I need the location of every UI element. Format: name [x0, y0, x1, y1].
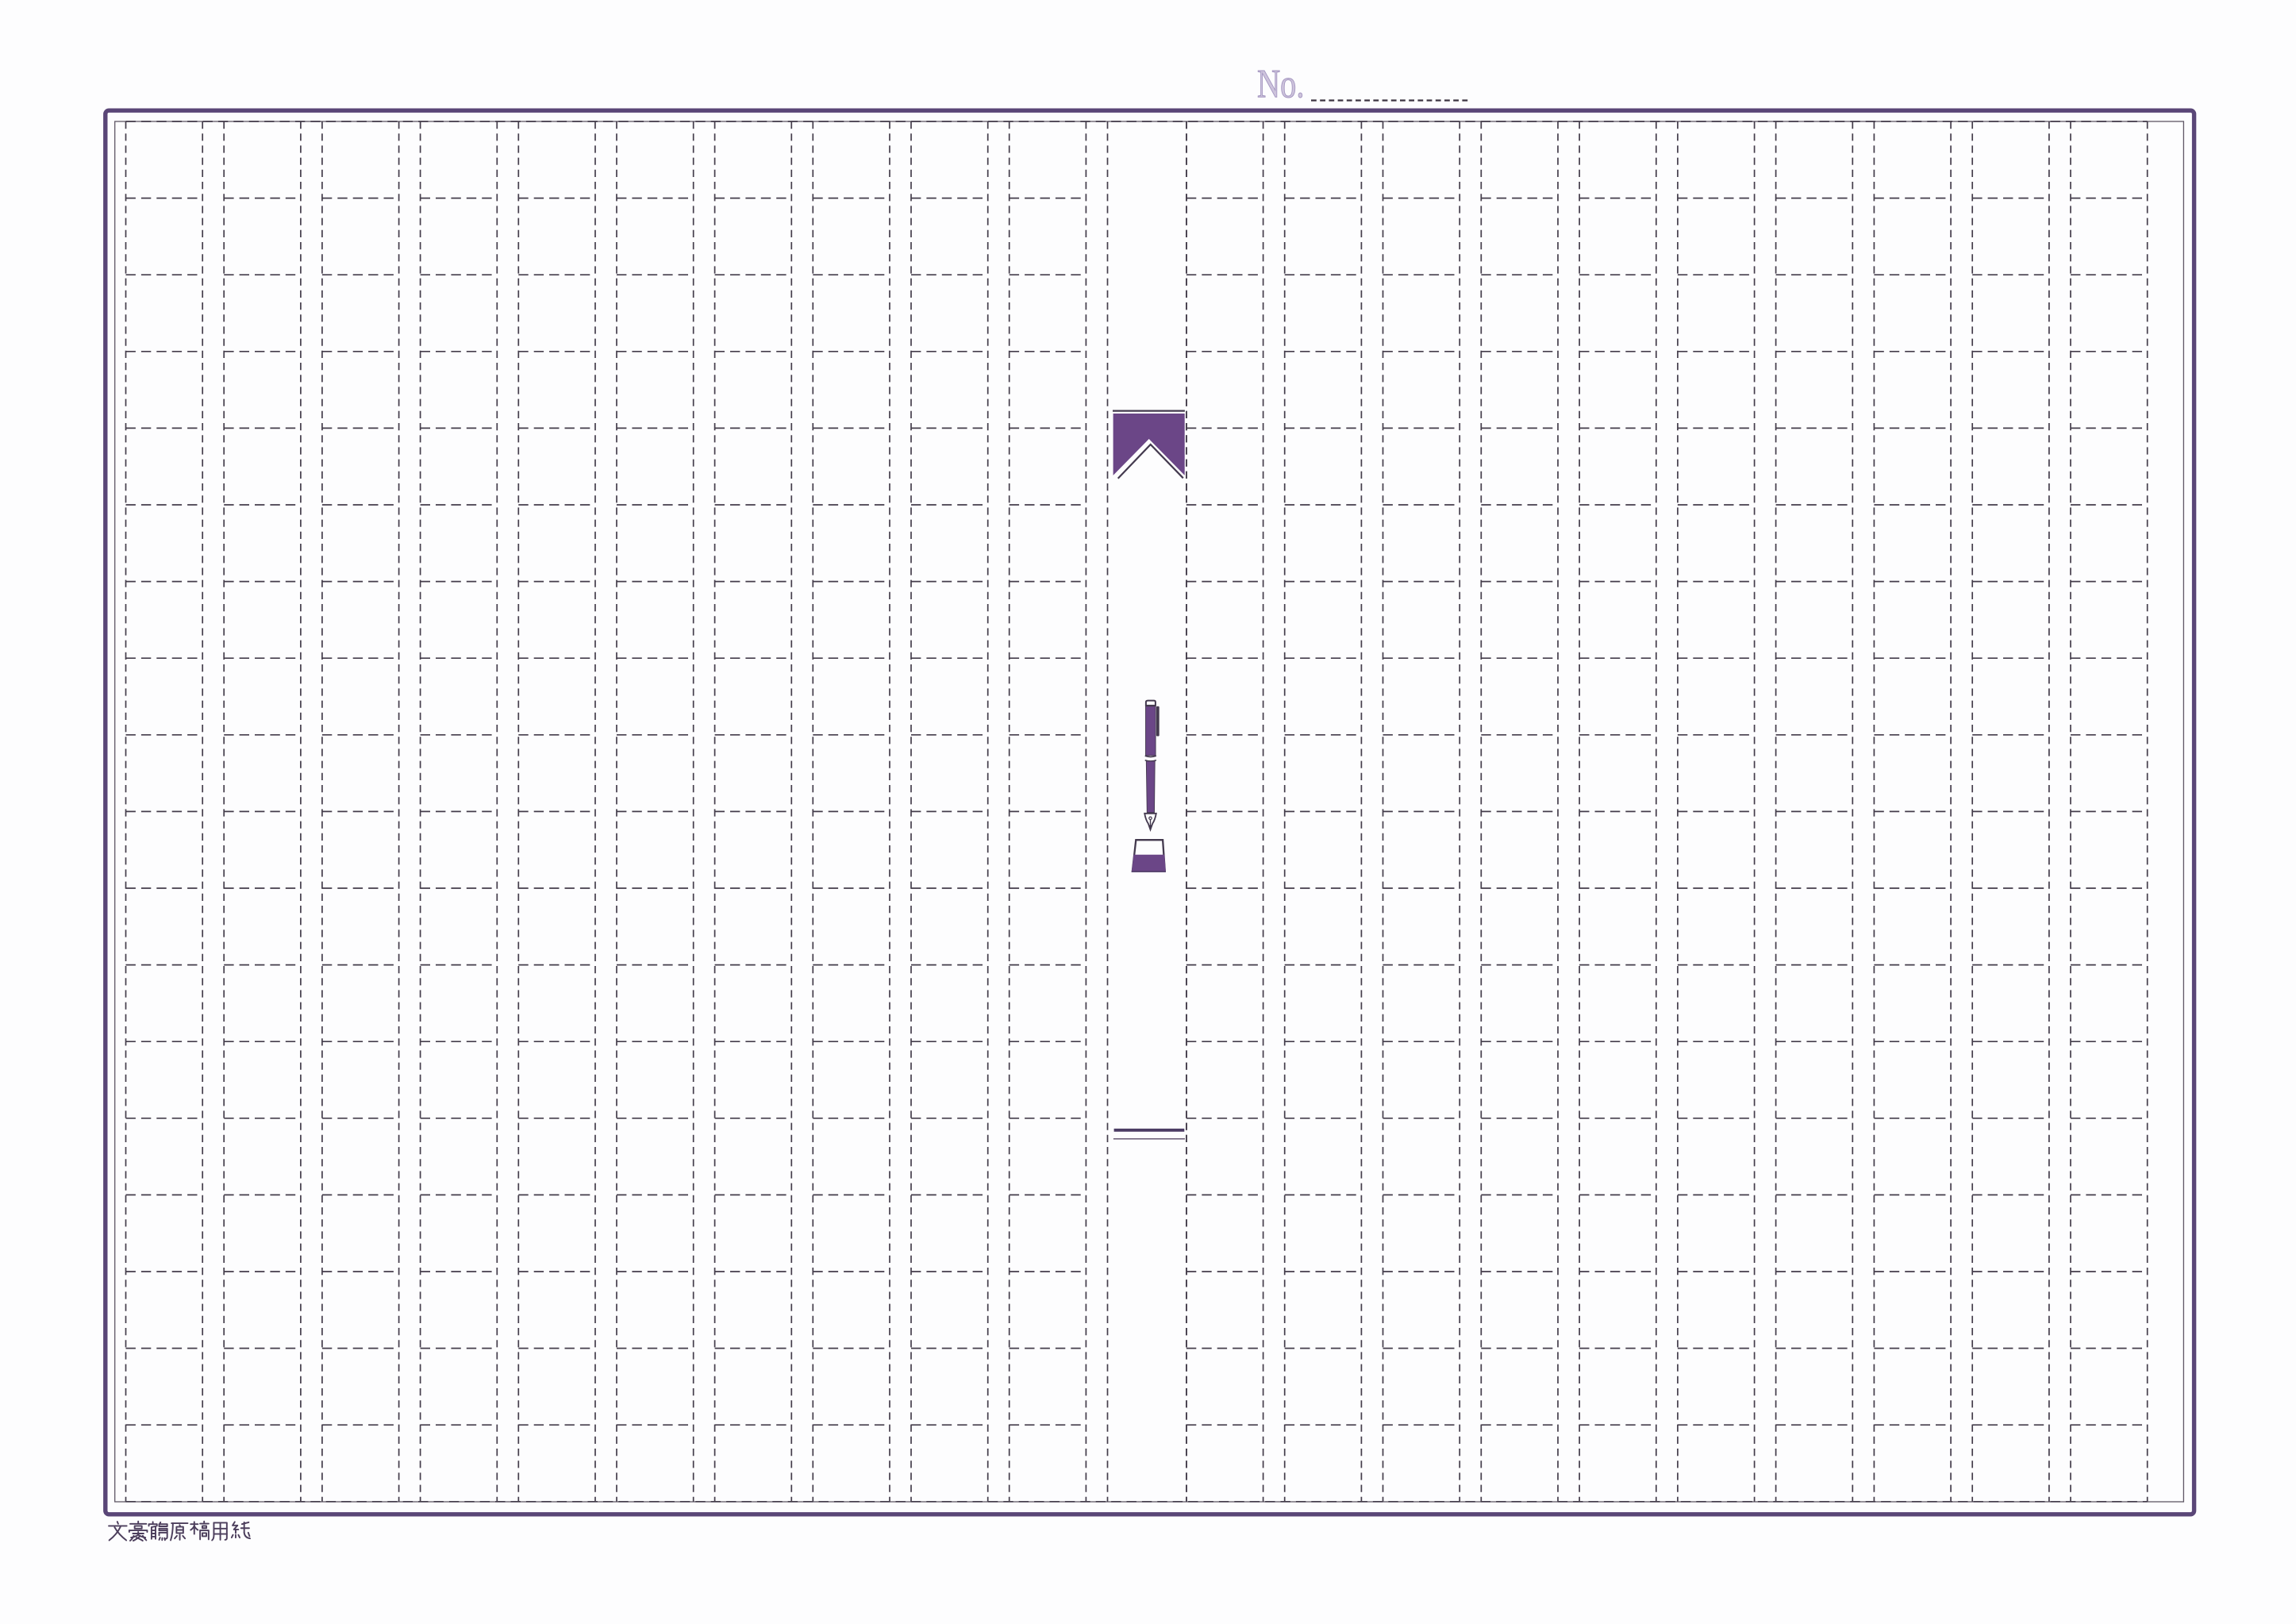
svg-text:No.: No.	[1257, 61, 1304, 106]
